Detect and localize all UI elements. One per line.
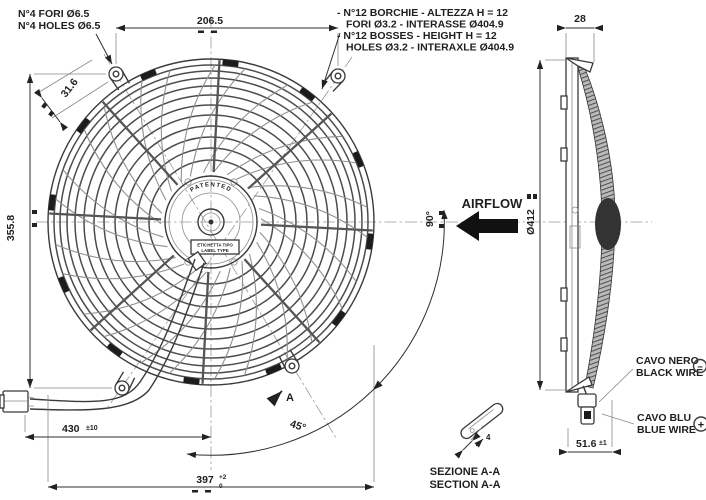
dim-overall-text: 397 — [196, 474, 214, 486]
dim-depth-text: 28 — [574, 13, 586, 25]
dimensions: 206.5 355.8 31.6 397 +2 0 — [5, 13, 612, 493]
fan-blade-edge — [181, 65, 215, 182]
holes-note-line2: N°4 HOLES Ø6.5 — [18, 20, 101, 32]
airflow-label: AIRFLOW — [462, 196, 523, 211]
dim-mount-height-text: 355.8 — [5, 215, 17, 241]
side-view — [561, 58, 621, 424]
blue-wire-line1: CAVO BLU — [637, 412, 691, 424]
dim-top-width: 206.5 — [116, 15, 338, 66]
dim-angle-45-text: 45° — [289, 418, 308, 434]
black-wire-callout: CAVO NERO BLACK WIRE − — [599, 355, 706, 402]
technical-drawing-page: SPALSPALSPALSPALSPALSPALSPALSPALSPALSPAL… — [0, 0, 706, 500]
hub-type-label-line2: LABEL TYPE — [201, 248, 228, 253]
svg-text:+: + — [698, 420, 704, 432]
dim-depth: 28 — [566, 13, 594, 62]
dim-top-width-text: 206.5 — [197, 15, 223, 27]
dim-overall-tol-plus: +2 — [219, 474, 227, 481]
side-connector — [578, 386, 596, 424]
fan-drawing: SPALSPALSPALSPALSPALSPALSPALSPALSPALSPAL… — [0, 0, 706, 500]
black-wire-line1: CAVO NERO — [636, 355, 699, 367]
bosses-note-line3: - N°12 BOSSES - HEIGHT H = 12 — [337, 30, 497, 42]
dim-wire-length: 430 ±10 — [25, 415, 211, 437]
dim-total-depth-text: 51.6 — [576, 438, 597, 450]
grille-rib — [49, 214, 161, 220]
section-title-line2: SECTION A-A — [429, 479, 500, 491]
holes-note-line1: N°4 FORI Ø6.5 — [18, 8, 89, 20]
dim-diameter-text: Ø412 — [525, 209, 537, 235]
grille-rib — [203, 272, 209, 384]
dim-angle-90-text: 90° — [424, 211, 436, 227]
section-clip-size: 4 — [486, 433, 491, 442]
svg-text:−: − — [697, 362, 703, 373]
dim-mount-height: 355.8 — [5, 74, 112, 388]
section-marker-a: A — [286, 392, 294, 404]
dim-wire-length-tol: ±10 — [86, 425, 98, 432]
dim-overall-tol-minus: 0 — [219, 483, 223, 490]
black-wire-line2: BLACK WIRE — [636, 367, 703, 379]
patented-label: PATENTED — [189, 182, 232, 194]
bosses-note-line4: HOLES Ø3.2 - INTERAXLE Ø404.9 — [346, 42, 514, 54]
hub-type-label-line1: ETICHETTA TIPO — [197, 243, 233, 248]
holes-note-leader — [96, 34, 112, 64]
blue-wire-line2: BLUE WIRE — [637, 424, 696, 436]
mounting-tab — [323, 69, 345, 91]
dim-total-depth-tol: ±1 — [599, 440, 607, 447]
section-detail: 4 SEZIONE A-A SECTION A-A — [429, 401, 505, 491]
fan-front-view: SPALSPALSPALSPALSPALSPALSPALSPALSPALSPAL… — [0, 59, 374, 412]
fan-blade-edge — [63, 264, 184, 279]
wire-connector — [0, 391, 34, 412]
section-marker: A — [271, 391, 294, 404]
bosses-note-line2: FORI Ø3.2 - INTERASSE Ø404.9 — [346, 19, 504, 31]
section-title-line1: SEZIONE A-A — [430, 466, 501, 478]
dim-wire-length-text: 430 — [62, 423, 80, 435]
dim-hole-offset: 31.6 — [36, 60, 108, 122]
dim-hole-offset-text: 31.6 — [59, 76, 81, 100]
bosses-note-line1: - N°12 BORCHIE - ALTEZZA H = 12 — [337, 7, 508, 19]
blue-wire-callout: CAVO BLU BLUE WIRE + — [602, 412, 706, 436]
fan-blade-edge — [84, 129, 161, 223]
airflow-arrow-icon — [456, 211, 518, 241]
grille-rib — [214, 60, 220, 172]
side-motor — [595, 198, 621, 250]
